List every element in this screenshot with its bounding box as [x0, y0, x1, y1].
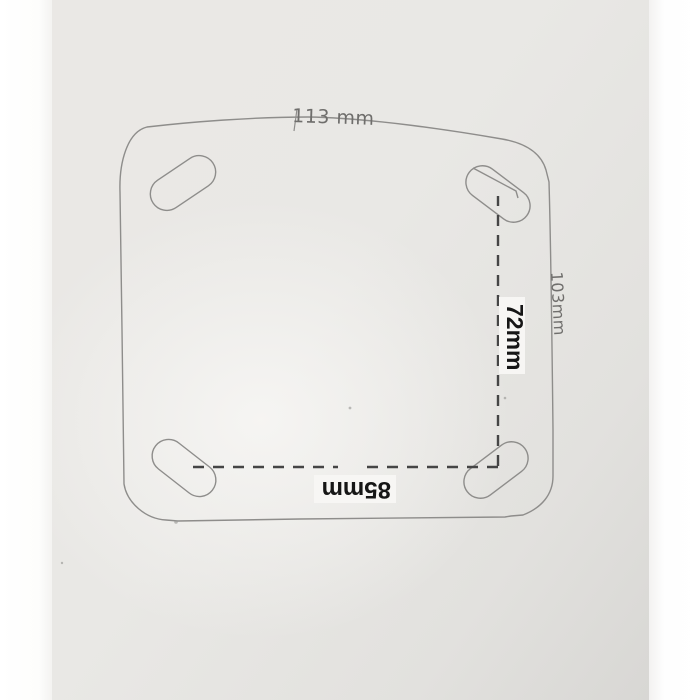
slot-bottom-left: [145, 433, 222, 503]
photo-of-plate-sketch: 113 mm 103mm 72mm 85mm: [0, 0, 700, 700]
dimension-dashed-lines: [193, 196, 498, 467]
dimension-label-side-height: 103mm: [547, 271, 569, 336]
dimension-label-top-width: 113 mm: [292, 105, 375, 130]
slot-bottom-right: [457, 435, 534, 505]
pencil-specks: [61, 397, 507, 565]
caster-plate-dimension-sketch: 113 mm 103mm 72mm 85mm: [0, 0, 700, 700]
dimension-label-vertical-spacing: 72mm: [502, 304, 528, 370]
dimension-label-horizontal-spacing: 85mm: [322, 476, 391, 503]
slot-top-left: [144, 149, 222, 217]
mounting-slots: [144, 149, 537, 505]
plate-outline: [120, 117, 553, 521]
